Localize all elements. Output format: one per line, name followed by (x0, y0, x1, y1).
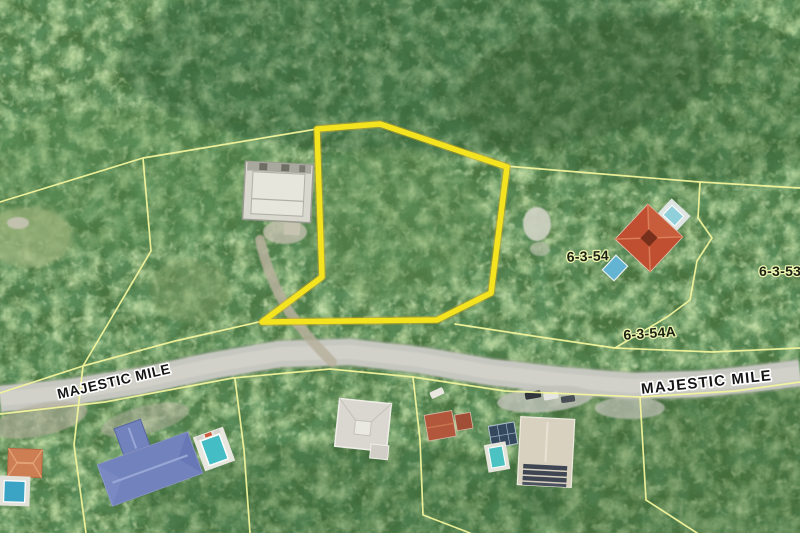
parcel-label-6-3-54: 6-3-54 (566, 247, 609, 264)
parcel-label-6-3-53: 6-3-53 (759, 263, 800, 279)
swimming-pool-blue (4, 481, 26, 503)
clearing-object (7, 217, 29, 229)
house-tan-solar-roof (517, 417, 574, 488)
pool-deck (0, 475, 30, 506)
bare-ground-patch (530, 242, 550, 256)
road-pullout (595, 397, 665, 419)
forest-background (0, 0, 800, 533)
bare-ground-patch (523, 207, 551, 241)
map-canvas[interactable]: 6-3-54 6-3-54A 6-3-53 MAJESTIC MILE MAJE… (0, 0, 800, 533)
